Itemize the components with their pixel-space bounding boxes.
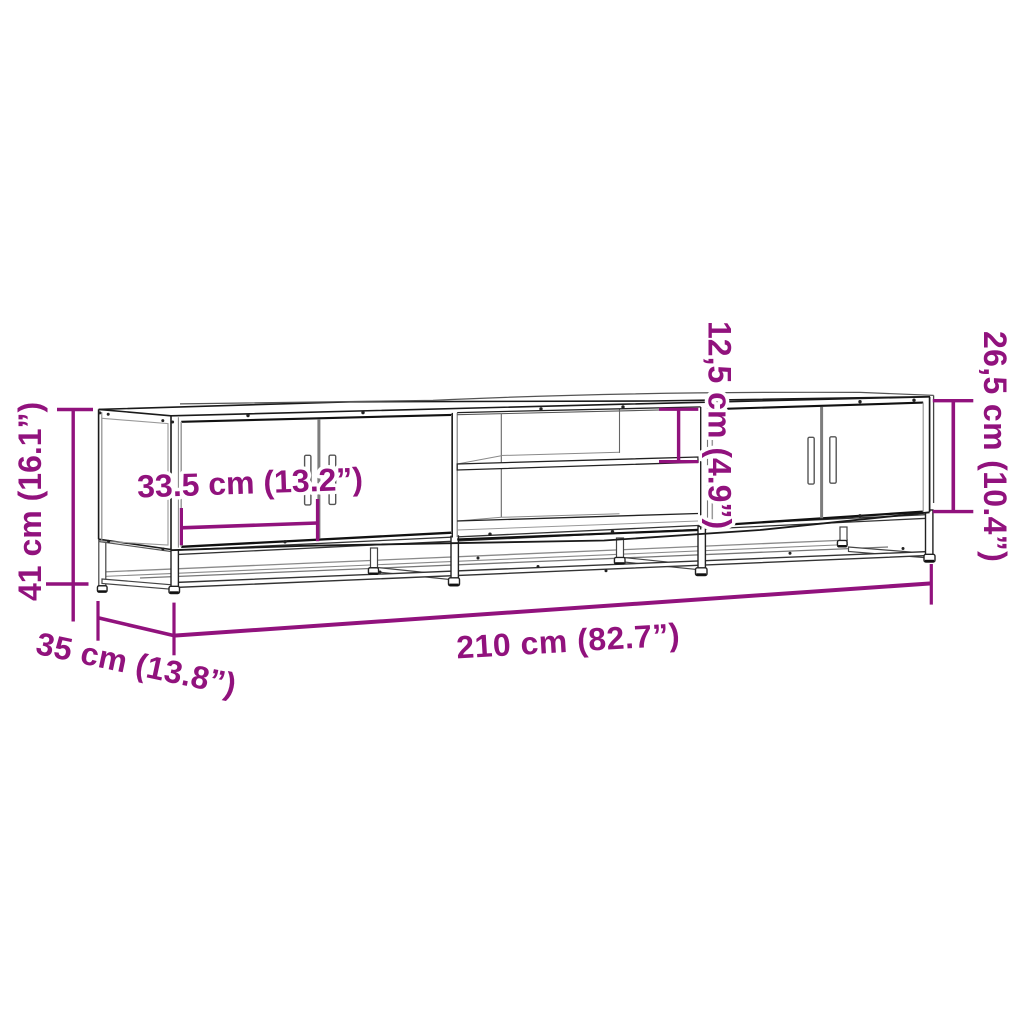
svg-text:12,5 cm (4.9”): 12,5 cm (4.9”) — [702, 321, 738, 529]
svg-text:26,5 cm (10.4”): 26,5 cm (10.4”) — [977, 331, 1013, 562]
svg-text:41 cm (16.1”): 41 cm (16.1”) — [12, 402, 48, 601]
